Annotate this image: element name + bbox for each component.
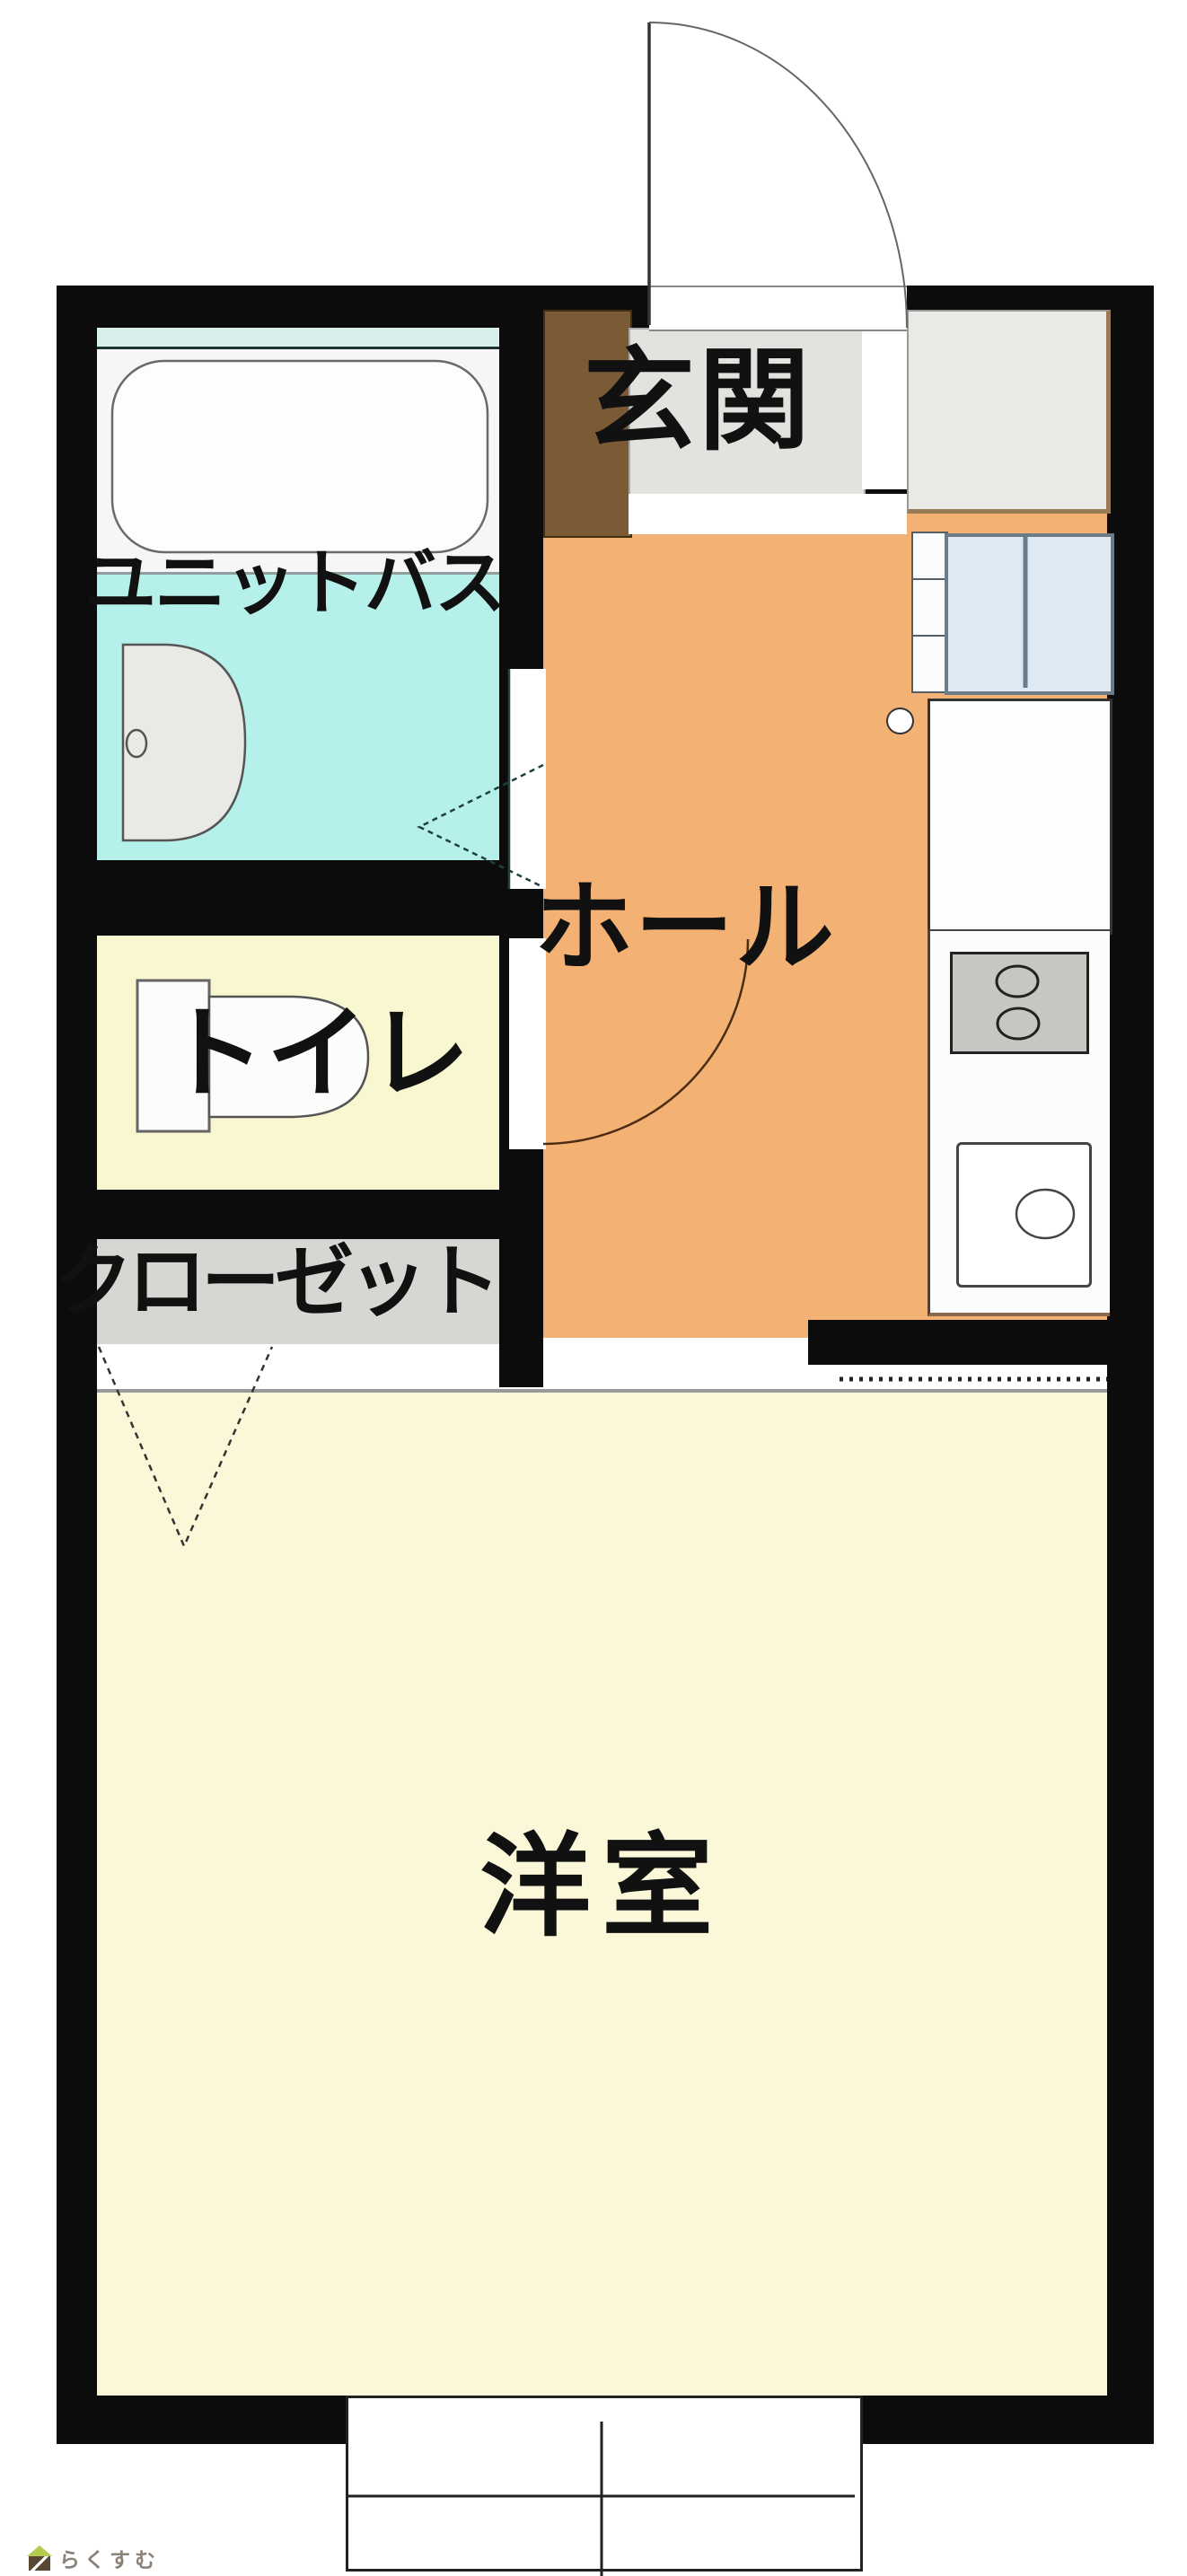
label-entrance: 玄関: [584, 346, 813, 457]
label-toilet: トイレ: [164, 1004, 471, 1104]
label-unit-bath: ユニットバス: [84, 548, 505, 620]
label-hall: ホール: [534, 878, 836, 977]
wall-bath-toilet: [97, 860, 499, 936]
label-western-room: 洋室: [479, 1832, 724, 1943]
watermark: らくすむ: [27, 2543, 160, 2573]
entrance-step: [629, 494, 907, 534]
entrance-door-swing-arc: [649, 22, 907, 328]
bath-tub-area: [97, 349, 499, 572]
kitchen-window-frame-column: [911, 532, 948, 693]
bath-top-strip: [97, 326, 499, 349]
entrance-door-opening: [649, 286, 907, 331]
bath-door-opening: [509, 669, 546, 889]
closet-door-track: [97, 1344, 499, 1387]
refrigerator-space: [907, 310, 1111, 514]
label-closet: クローゼット: [54, 1243, 496, 1322]
faucet-knob-icon: [886, 708, 914, 734]
balcony-sliding-window: [346, 2396, 863, 2572]
watermark-brand: らくすむ: [59, 2543, 160, 2573]
wall-toilet-closet: [97, 1190, 499, 1239]
house-icon: [27, 2545, 52, 2571]
floor-plan: ユニットバス 玄関 ホール トイレ クローゼット 洋室 らくすむ: [0, 0, 1187, 2576]
appliance-space: [928, 699, 1112, 935]
stove: [950, 952, 1089, 1054]
kitchen-sink: [956, 1142, 1092, 1288]
wall-stub-kitchen: [808, 1320, 1118, 1365]
kitchen-window: [945, 533, 1114, 695]
